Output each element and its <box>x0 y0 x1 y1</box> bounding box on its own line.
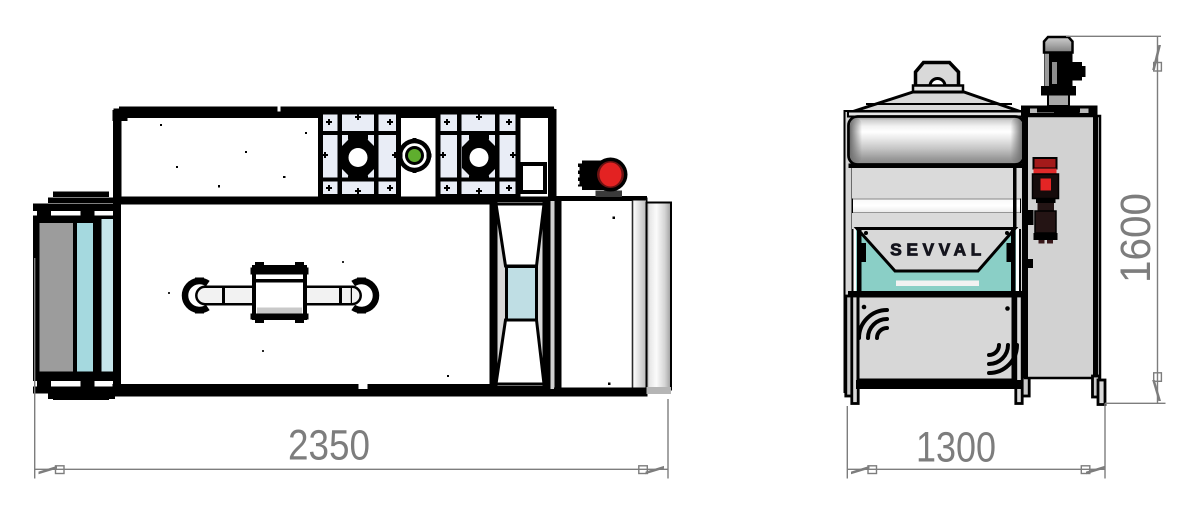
svg-text:SEVVAL: SEVVAL <box>890 240 986 260</box>
svg-text:1600: 1600 <box>1112 193 1160 283</box>
svg-text:2350: 2350 <box>288 422 370 470</box>
svg-text:1300: 1300 <box>916 424 996 472</box>
